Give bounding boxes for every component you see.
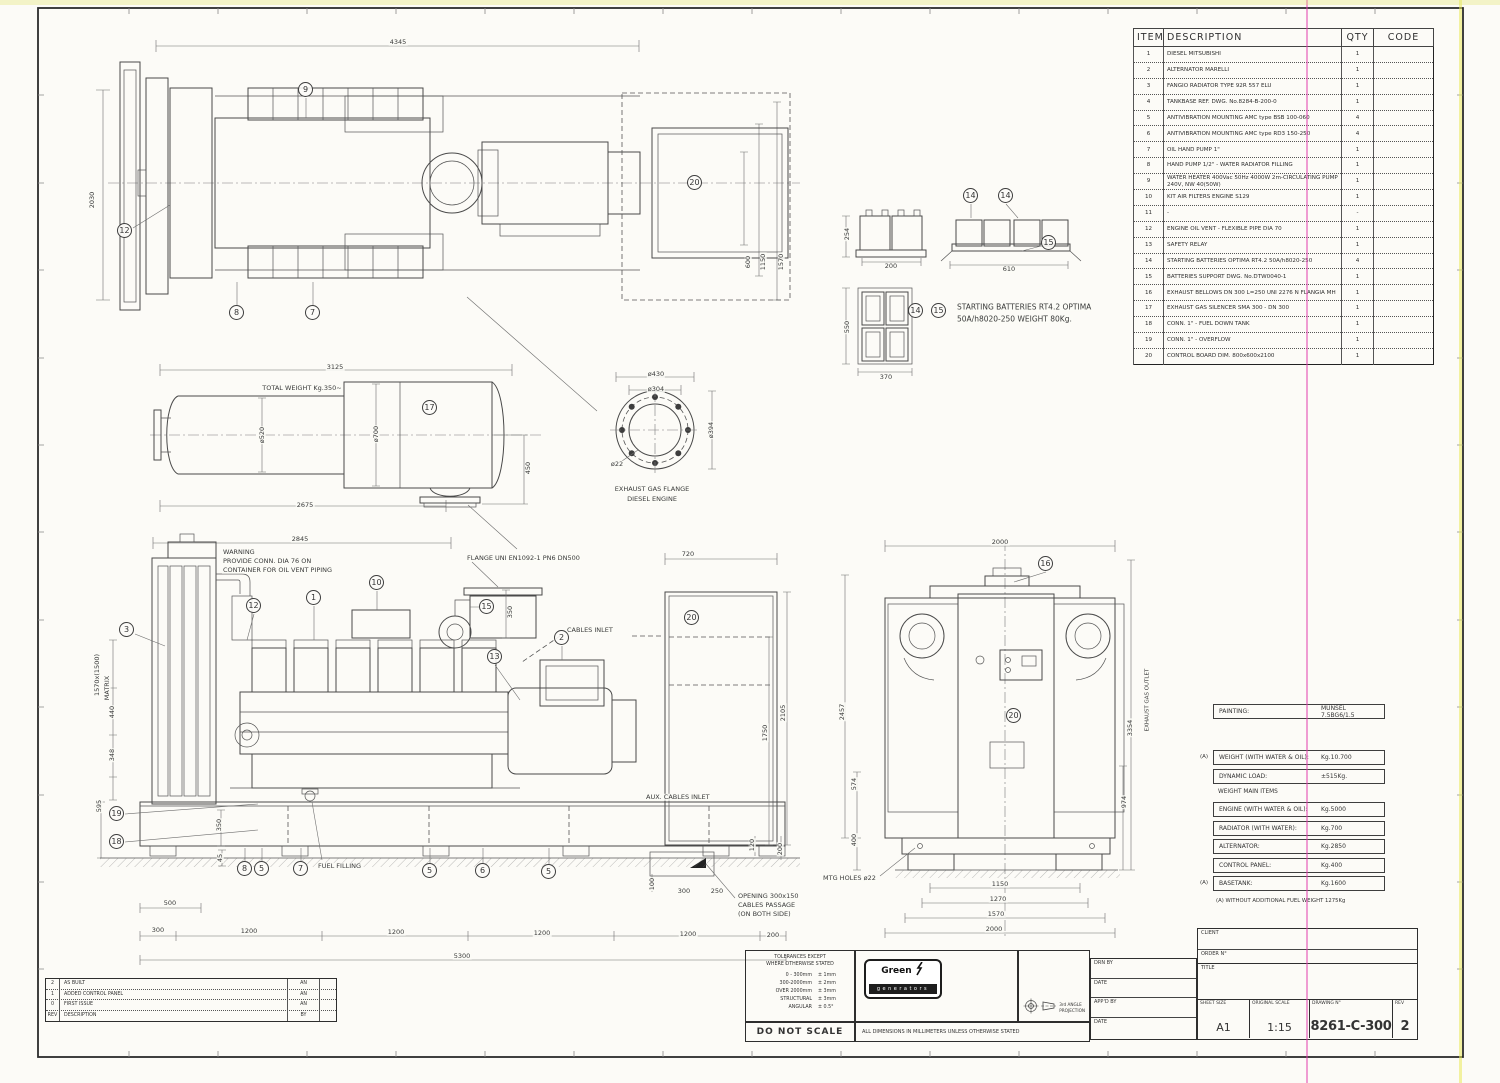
parts-row-description: EXHAUST BELLOWS DN 300 L=250 UNI 2276 N … <box>1164 285 1342 301</box>
dim-label: 1570 <box>778 253 785 272</box>
parts-row-qty: 1 <box>1342 174 1374 190</box>
parts-row-code <box>1374 348 1434 364</box>
tolerance-row-range: 0 - 300mm <box>754 972 818 980</box>
parts-row-description: KIT AIR FILTERS ENGINE S129 <box>1164 190 1342 206</box>
parts-row-code <box>1374 62 1434 78</box>
revision-row-x <box>319 979 336 989</box>
dim-label: 348 <box>109 748 116 762</box>
opening-note: (ON BOTH SIDE) <box>737 911 792 918</box>
parts-row-item: 16 <box>1134 285 1164 301</box>
item-balloon-17: 17 <box>422 400 437 415</box>
revision-row-rev: 2 <box>46 979 60 989</box>
parts-row-qty: 4 <box>1342 253 1374 269</box>
tolerance-row-range: OVER 2000mm <box>754 988 818 996</box>
weight-row-value: Kg.700 <box>1321 825 1379 832</box>
dim-label: 1750 <box>762 724 769 743</box>
item-balloon-14: 14 <box>998 188 1013 203</box>
parts-row-item: 5 <box>1134 110 1164 126</box>
do-not-scale-label: DO NOT SCALE <box>745 1022 855 1042</box>
parts-row: 18CONN. 1" - FUEL DOWN TANK1 <box>1134 317 1434 333</box>
weight-prefix-a: (A) <box>1200 880 1208 886</box>
tolerances-rows: 0 - 300mm± 1mm300-2000mm± 2mmOVER 2000mm… <box>746 972 854 1012</box>
revision-row-rev: 1 <box>46 990 60 1000</box>
revision-row-rev: 0 <box>46 1000 60 1010</box>
appd-by-cell: APP'D BY <box>1091 998 1196 1018</box>
tolerance-row-tol: ± 1mm <box>818 972 846 980</box>
parts-list-table: ITEM DESCRIPTION QTY CODE 1DIESEL MITSUB… <box>1133 28 1434 365</box>
dim-label: 550 <box>844 320 851 334</box>
weight-row: CONTROL PANEL:Kg.400 <box>1213 858 1385 873</box>
parts-header-row: ITEM DESCRIPTION QTY CODE <box>1134 29 1434 47</box>
drn-by-cell: DRN BY <box>1091 959 1196 979</box>
parts-row-item: 14 <box>1134 253 1164 269</box>
parts-row: 10KIT AIR FILTERS ENGINE S1291 <box>1134 190 1434 206</box>
logo-wordmark: Green Power <box>866 961 940 1001</box>
item-balloon-14: 14 <box>908 303 923 318</box>
tolerance-row-range: ANGULAR <box>754 1004 818 1012</box>
parts-row: 15BATTERIES SUPPORT DWG. No.DTW0040-11 <box>1134 269 1434 285</box>
dim-label: 1200 <box>387 929 406 936</box>
tolerance-row-tol: ± 0.5° <box>818 1004 846 1012</box>
aux-cables-note: AUX. CABLES INLET <box>645 794 711 801</box>
parts-row: 4TANKBASE REF. DWG. No.8284-B-200-01 <box>1134 94 1434 110</box>
parts-header-description: DESCRIPTION <box>1164 29 1342 47</box>
parts-row-qty: - <box>1342 205 1374 221</box>
parts-row-code <box>1374 205 1434 221</box>
dim-label: 5300 <box>453 953 472 960</box>
parts-row-item: 10 <box>1134 190 1164 206</box>
revision-row-desc: ADDED CONTROL PANEL <box>60 990 287 1000</box>
parts-row: 6ANTIVIBRATION MOUNTING AMC type RD3 150… <box>1134 126 1434 142</box>
painting-label: PAINTING: <box>1219 708 1321 715</box>
item-balloon-5: 5 <box>422 863 437 878</box>
revision-row: 2AS BUILTAN <box>46 979 336 990</box>
parts-header-code: CODE <box>1374 29 1434 47</box>
parts-row-code <box>1374 47 1434 63</box>
drawing-no-label: DRAWING N° <box>1312 1001 1341 1006</box>
scale-value: 1:15 <box>1250 1021 1309 1034</box>
parts-row-qty: 1 <box>1342 158 1374 174</box>
item-balloon-16: 16 <box>1038 556 1053 571</box>
parts-row-item: 15 <box>1134 269 1164 285</box>
revision-row: 1ADDED CONTROL PANELAN <box>46 990 336 1001</box>
weight-row: BASETANK:Kg.1600 <box>1213 876 1385 891</box>
revision-row: 0FIRST ISSUEAN <box>46 1000 336 1011</box>
revision-row-desc: FIRST ISSUE <box>60 1000 287 1010</box>
painting-value: MUNSEL 7.5BG6/1.5 <box>1321 705 1379 719</box>
client-cell: CLIENT <box>1198 929 1417 950</box>
side-view <box>97 534 800 965</box>
revision-row: REVDESCRIPTIONBY <box>46 1011 336 1022</box>
dim-label: MATRIX <box>104 675 111 701</box>
dim-label: 1570x(1500) <box>94 653 101 697</box>
parts-row-item: 2 <box>1134 62 1164 78</box>
revision-row-rev: REV <box>46 1011 60 1022</box>
parts-row: 3FANGIO RADIATOR TYPE 92R 557 ELU1 <box>1134 78 1434 94</box>
drawing-sheet: 43452030600115015703125TOTAL WEIGHT Kg.3… <box>0 0 1500 1083</box>
item-balloon-2: 2 <box>554 630 569 645</box>
title-block: CLIENT ORDER N° TITLE SHEET SIZE A1 ORIG… <box>1197 928 1418 1040</box>
dim-label: 1150 <box>991 881 1010 888</box>
parts-row-code <box>1374 110 1434 126</box>
weight-row-value: Kg.10.700 <box>1321 754 1379 761</box>
dimensions-note: ALL DIMENSIONS IN MILLIMETERS UNLESS OTH… <box>855 1022 1090 1042</box>
dim-label: 2000 <box>991 539 1010 546</box>
dim-label: 2105 <box>780 704 787 723</box>
cables-inlet-note: CABLES INLET <box>566 627 614 634</box>
revision-row-by: AN <box>287 1000 319 1010</box>
parts-row-description: WATER HEATER 400Vac 50Hz 4000W 2m-CIRCUL… <box>1164 174 1342 190</box>
parts-row-code <box>1374 94 1434 110</box>
weight-row-label: WEIGHT (WITH WATER & OIL): <box>1219 754 1321 761</box>
dim-label: 1200 <box>533 930 552 937</box>
dim-label: 120 <box>749 838 756 852</box>
parts-row: 5ANTIVIBRATION MOUNTING AMC type BSB 100… <box>1134 110 1434 126</box>
parts-row-qty: 1 <box>1342 142 1374 158</box>
parts-row: 12ENGINE OIL VENT - FLEXIBLE PIPE DIA 70… <box>1134 221 1434 237</box>
batteries-note: STARTING BATTERIES RT4.2 OPTIMA <box>956 303 1092 311</box>
sheet-size-label: SHEET SIZE <box>1200 1001 1226 1006</box>
warning-note: CONTAINER FOR OIL VENT PIPING <box>222 567 333 574</box>
revision-row-desc: DESCRIPTION <box>60 1011 287 1022</box>
item-balloon-5: 5 <box>254 861 269 876</box>
dim-label: 2457 <box>839 703 846 722</box>
parts-row: 17EXHAUST GAS SILENCER SMA 300 - DN 3001 <box>1134 301 1434 317</box>
batteries-note: 50A/h8020-250 WEIGHT 80Kg. <box>956 315 1073 323</box>
silencer-weight-note: TOTAL WEIGHT Kg.350~ <box>261 385 342 392</box>
order-no-cell: ORDER N° <box>1198 950 1417 964</box>
parts-row: 1DIESEL MITSUBISHI1 <box>1134 47 1434 63</box>
parts-row-item: 13 <box>1134 237 1164 253</box>
dim-label: 200 <box>777 842 784 856</box>
dim-label: 1570 <box>987 911 1006 918</box>
parts-row: 7OIL HAND PUMP 1"1 <box>1134 142 1434 158</box>
appd-date-cell: DATE <box>1091 1018 1196 1038</box>
parts-row: 11-- <box>1134 205 1434 221</box>
parts-row-code <box>1374 158 1434 174</box>
rev-value: 2 <box>1393 1019 1417 1034</box>
weight-row-value: ±515Kg. <box>1321 773 1379 780</box>
parts-row-code <box>1374 253 1434 269</box>
drawing-no-cell: DRAWING N° 8261-C-300 <box>1310 1000 1393 1038</box>
tolerance-row: ANGULAR± 0.5° <box>746 1004 854 1012</box>
dim-label: ø430 <box>647 371 665 378</box>
dim-label: 350 <box>216 818 223 832</box>
plan-view <box>96 40 800 411</box>
parts-row-code <box>1374 269 1434 285</box>
dim-label: 2000 <box>985 926 1004 933</box>
parts-row-description: FANGIO RADIATOR TYPE 92R 557 ELU <box>1164 78 1342 94</box>
parts-row-item: 12 <box>1134 221 1164 237</box>
projection-note: 3rd ANGLE PROJECTION <box>1059 1002 1085 1013</box>
parts-row-item: 11 <box>1134 205 1164 221</box>
projection-box: 3rd ANGLE PROJECTION <box>1018 950 1090 1022</box>
silencer-view <box>150 364 542 549</box>
parts-row: 16EXHAUST BELLOWS DN 300 L=250 UNI 2276 … <box>1134 285 1434 301</box>
parts-row-description: - <box>1164 205 1342 221</box>
parts-row-qty: 1 <box>1342 47 1374 63</box>
drawing-no-value: 8261-C-300 <box>1310 1019 1392 1034</box>
parts-row-item: 17 <box>1134 301 1164 317</box>
parts-row: 20CONTROL BOARD DIM. 800x600x21001 <box>1134 348 1434 364</box>
tolerance-row: 0 - 300mm± 1mm <box>746 972 854 980</box>
dim-label: 574 <box>851 777 858 791</box>
item-balloon-14: 14 <box>963 188 978 203</box>
parts-row-item: 7 <box>1134 142 1164 158</box>
weight-row-value: Kg.1600 <box>1321 880 1379 887</box>
parts-row-item: 1 <box>1134 47 1164 63</box>
parts-row-code <box>1374 317 1434 333</box>
parts-row-description: SAFETY RELAY <box>1164 237 1342 253</box>
weight-row: DYNAMIC LOAD:±515Kg. <box>1213 769 1385 784</box>
parts-row: 8HAND PUMP 1/2" - WATER RADIATOR FILLING… <box>1134 158 1434 174</box>
parts-row-qty: 1 <box>1342 237 1374 253</box>
dim-label: 974 <box>1121 795 1128 809</box>
flange-caption: DIESEL ENGINE <box>626 496 678 503</box>
dim-label: 300 <box>677 888 691 895</box>
parts-row-code <box>1374 78 1434 94</box>
weight-row-label: ENGINE (WITH WATER & OIL): <box>1219 806 1321 813</box>
dim-label: 1200 <box>679 931 698 938</box>
dim-label: 1200 <box>240 928 259 935</box>
parts-row-description: ANTIVIBRATION MOUNTING AMC type BSB 100-… <box>1164 110 1342 126</box>
green-power-logo: Green Power generators <box>864 959 942 999</box>
revision-row-by: AN <box>287 979 319 989</box>
parts-row-description: CONN. 1" - OVERFLOW <box>1164 333 1342 349</box>
weight-row-value: Kg.2850 <box>1321 843 1379 850</box>
dim-label: 400 <box>851 833 858 847</box>
dim-label: 610 <box>1002 266 1016 273</box>
parts-row-qty: 1 <box>1342 221 1374 237</box>
weight-row-label: DYNAMIC LOAD: <box>1219 773 1321 780</box>
tolerances-box: TOLERANCES EXCEPT WHERE OTHERWISE STATED… <box>745 950 855 1022</box>
weight-prefix-a: (A) <box>1200 754 1208 760</box>
parts-row-code <box>1374 285 1434 301</box>
weight-row: WEIGHT (WITH WATER & OIL):Kg.10.700 <box>1213 750 1385 765</box>
revision-row-desc: AS BUILT <box>60 979 287 989</box>
warning-note: WARNING <box>222 549 256 556</box>
item-balloon-9: 9 <box>298 82 313 97</box>
projection-note-line2: PROJECTION <box>1059 1008 1085 1013</box>
dim-label: 1270 <box>989 896 1008 903</box>
parts-row-description: STARTING BATTERIES OPTIMA RT4.2 50A/h802… <box>1164 253 1342 269</box>
opening-note: OPENING 300x150 <box>737 893 800 900</box>
tolerance-row-range: STRUCTURAL <box>754 996 818 1004</box>
revision-row-x <box>319 1011 336 1022</box>
revision-row-by: AN <box>287 990 319 1000</box>
item-balloon-18: 18 <box>109 834 124 849</box>
sheet-size-cell: SHEET SIZE A1 <box>1198 1000 1250 1038</box>
parts-row-item: 6 <box>1134 126 1164 142</box>
parts-row-description: CONN. 1" - FUEL DOWN TANK <box>1164 317 1342 333</box>
parts-header-item: ITEM <box>1134 29 1164 47</box>
tolerance-row: 300-2000mm± 2mm <box>746 980 854 988</box>
item-balloon-7: 7 <box>293 861 308 876</box>
dim-label: 2030 <box>89 191 96 210</box>
parts-row-item: 19 <box>1134 333 1164 349</box>
parts-row-description: HAND PUMP 1/2" - WATER RADIATOR FILLING <box>1164 158 1342 174</box>
parts-row-qty: 1 <box>1342 269 1374 285</box>
third-angle-projection-icon <box>1023 997 1057 1015</box>
warning-note: PROVIDE CONN. DIA 76 ON <box>222 558 312 565</box>
rev-cell: REV 2 <box>1393 1000 1417 1038</box>
tolerance-row: OVER 2000mm± 3mm <box>746 988 854 996</box>
revision-row-x <box>319 1000 336 1010</box>
tolerance-row: STRUCTURAL± 3mm <box>746 996 854 1004</box>
parts-row-item: 3 <box>1134 78 1164 94</box>
dim-label: 45 <box>217 853 224 863</box>
tolerances-title-line1: TOLERANCES EXCEPT <box>746 955 854 962</box>
battery-details <box>842 204 1081 376</box>
dim-label: ø304 <box>647 386 665 393</box>
parts-row-qty: 1 <box>1342 62 1374 78</box>
parts-row-item: 4 <box>1134 94 1164 110</box>
parts-row-qty: 1 <box>1342 78 1374 94</box>
parts-row-description: ALTERNATOR MARELLI <box>1164 62 1342 78</box>
dim-label: 500 <box>163 900 177 907</box>
item-balloon-1: 1 <box>306 590 321 605</box>
parts-row-description: ENGINE OIL VENT - FLEXIBLE PIPE DIA 70 <box>1164 221 1342 237</box>
dim-label: 720 <box>681 551 695 558</box>
parts-row-code <box>1374 174 1434 190</box>
rev-label: REV <box>1395 1001 1404 1006</box>
sheet-size-value: A1 <box>1198 1021 1249 1034</box>
dim-label: 200 <box>766 932 780 939</box>
parts-row-description: ANTIVIBRATION MOUNTING AMC type RD3 150-… <box>1164 126 1342 142</box>
parts-row-description: EXHAUST GAS SILENCER SMA 300 - DN 300 <box>1164 301 1342 317</box>
weight-row-label: ALTERNATOR: <box>1219 843 1321 850</box>
item-balloon-10: 10 <box>369 575 384 590</box>
parts-row-code <box>1374 221 1434 237</box>
dim-label: ø520 <box>259 426 266 444</box>
tolerance-row-range: 300-2000mm <box>754 980 818 988</box>
weight-row: ALTERNATOR:Kg.2850 <box>1213 839 1385 854</box>
dim-label: 2845 <box>291 536 310 543</box>
parts-row-qty: 1 <box>1342 190 1374 206</box>
weight-row-label: BASETANK: <box>1219 880 1321 887</box>
item-balloon-3: 3 <box>119 622 134 637</box>
dim-label: 450 <box>525 461 532 475</box>
item-balloon-15: 15 <box>931 303 946 318</box>
dim-label: 250 <box>710 888 724 895</box>
parts-row-qty: 1 <box>1342 348 1374 364</box>
parts-row-description: TANKBASE REF. DWG. No.8284-B-200-0 <box>1164 94 1342 110</box>
painting-row: PAINTING: MUNSEL 7.5BG6/1.5 <box>1213 704 1385 719</box>
item-balloon-5: 5 <box>541 864 556 879</box>
item-balloon-20: 20 <box>1006 708 1021 723</box>
title-cell: TITLE <box>1198 964 1417 1000</box>
dim-label: 300 <box>151 927 165 934</box>
painting-box: PAINTING: MUNSEL 7.5BG6/1.5 <box>1213 704 1385 723</box>
item-balloon-12: 12 <box>117 223 132 238</box>
item-balloon-12: 12 <box>246 598 261 613</box>
weights-footnote: (A) WITHOUT ADDITIONAL FUEL WEIGHT 1275K… <box>1216 898 1345 904</box>
weights-main-title: WEIGHT MAIN ITEMS <box>1218 789 1278 795</box>
dim-label: 370 <box>879 374 893 381</box>
parts-row: 19CONN. 1" - OVERFLOW1 <box>1134 333 1434 349</box>
dim-label: 600 <box>745 255 752 269</box>
flange-note: FLANGE UNI EN1092-1 PN6 DN500 <box>466 555 581 562</box>
item-balloon-15: 15 <box>479 599 494 614</box>
drn-date-cell: DATE <box>1091 979 1196 999</box>
weight-row: ENGINE (WITH WATER & OIL):Kg.5000 <box>1213 802 1385 817</box>
parts-row-code <box>1374 190 1434 206</box>
parts-row-qty: 1 <box>1342 94 1374 110</box>
parts-row-description: OIL HAND PUMP 1" <box>1164 142 1342 158</box>
item-balloon-7: 7 <box>305 305 320 320</box>
tolerances-title: TOLERANCES EXCEPT WHERE OTHERWISE STATED <box>746 955 854 968</box>
logo-word-green: Green <box>881 966 911 976</box>
item-balloon-19: 19 <box>109 806 124 821</box>
parts-row-qty: 1 <box>1342 333 1374 349</box>
flange-caption: EXHAUST GAS FLANGE <box>614 486 690 493</box>
dim-label: 440 <box>109 705 116 719</box>
revision-table: 2AS BUILTAN1ADDED CONTROL PANELAN0FIRST … <box>45 978 337 1022</box>
parts-row-description: BATTERIES SUPPORT DWG. No.DTW0040-1 <box>1164 269 1342 285</box>
mtg-holes-note: MTG HOLES ø22 <box>822 875 877 882</box>
dim-label: ø394 <box>708 421 715 439</box>
opening-note: CABLES PASSAGE <box>737 902 796 909</box>
logo-box: Green Power generators <box>855 950 1018 1022</box>
weight-row-label: CONTROL PANEL: <box>1219 862 1321 869</box>
dim-label: 2675 <box>296 502 315 509</box>
parts-row-code <box>1374 237 1434 253</box>
item-balloon-20: 20 <box>684 610 699 625</box>
rear-view <box>841 540 1135 938</box>
weights-top-block: WEIGHT (WITH WATER & OIL):Kg.10.700DYNAM… <box>1213 750 1385 787</box>
dim-label: ø700 <box>373 425 380 443</box>
weight-row-label: RADIATOR (WITH WATER): <box>1219 825 1321 832</box>
dim-label: 1150 <box>760 253 767 272</box>
parts-row-item: 20 <box>1134 348 1164 364</box>
dim-label: 595 <box>96 799 103 813</box>
tolerance-row-tol: ± 3mm <box>818 996 846 1004</box>
dim-label: 3125 <box>326 364 345 371</box>
parts-row-code <box>1374 126 1434 142</box>
revision-row-by: BY <box>287 1011 319 1022</box>
item-balloon-8: 8 <box>237 861 252 876</box>
tolerances-title-line2: WHERE OTHERWISE STATED <box>746 962 854 969</box>
parts-row-description: DIESEL MITSUBISHI <box>1164 47 1342 63</box>
parts-row-description: CONTROL BOARD DIM. 800x600x2100 <box>1164 348 1342 364</box>
dim-label: 3354 <box>1127 719 1134 738</box>
weights-main-block: ENGINE (WITH WATER & OIL):Kg.5000RADIATO… <box>1213 802 1385 895</box>
dim-label: 200 <box>884 263 898 270</box>
item-balloon-6: 6 <box>475 863 490 878</box>
exhaust-outlet-label: EXHAUST GAS OUTLET <box>1145 668 1151 733</box>
dim-label: 100 <box>649 877 656 891</box>
dim-label: ø22 <box>610 461 624 468</box>
parts-row-code <box>1374 301 1434 317</box>
parts-row-qty: 1 <box>1342 301 1374 317</box>
weight-row-value: Kg.400 <box>1321 862 1379 869</box>
parts-header-qty: QTY <box>1342 29 1374 47</box>
item-balloon-13: 13 <box>487 649 502 664</box>
parts-row-qty: 1 <box>1342 285 1374 301</box>
weight-row-value: Kg.5000 <box>1321 806 1379 813</box>
scale-cell: ORIGINAL SCALE 1:15 <box>1250 1000 1310 1038</box>
projection-note-line1: 3rd ANGLE <box>1059 1002 1085 1007</box>
parts-row-qty: 1 <box>1342 317 1374 333</box>
parts-row-code <box>1374 142 1434 158</box>
item-balloon-8: 8 <box>229 305 244 320</box>
lightning-bolt-icon <box>915 962 925 976</box>
tolerance-row-tol: ± 2mm <box>818 980 846 988</box>
weight-row: RADIATOR (WITH WATER):Kg.700 <box>1213 821 1385 836</box>
revision-row-x <box>319 990 336 1000</box>
parts-row-qty: 4 <box>1342 126 1374 142</box>
scale-label: ORIGINAL SCALE <box>1252 1001 1290 1006</box>
